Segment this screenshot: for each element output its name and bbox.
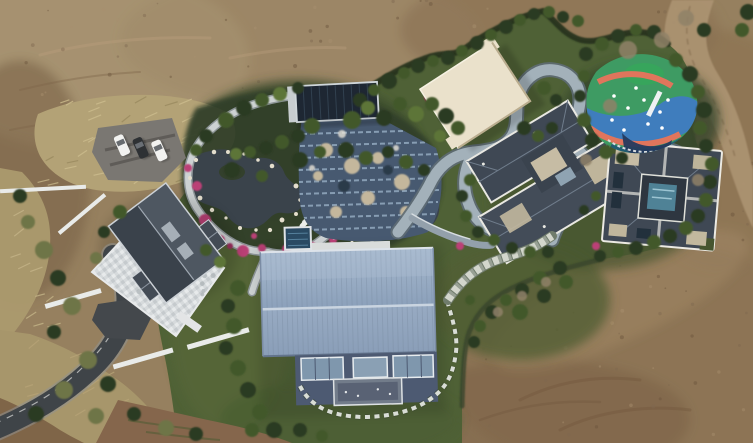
- tree: [472, 226, 484, 238]
- tree: [226, 318, 242, 334]
- tree: [230, 148, 242, 160]
- tree: [616, 152, 628, 164]
- tree: [585, 133, 599, 147]
- dirt-speckle: [125, 44, 128, 47]
- dirt-speckle: [742, 239, 745, 242]
- dirt-speckle: [486, 8, 488, 10]
- tree: [230, 280, 246, 296]
- tree: [244, 146, 256, 158]
- tree: [629, 241, 643, 255]
- tree: [113, 205, 127, 219]
- dirt-speckle: [429, 2, 433, 6]
- tree: [158, 420, 174, 436]
- dirt-speckle: [257, 80, 260, 83]
- dirt-speckle: [618, 333, 620, 335]
- tree: [559, 275, 573, 289]
- dirt-speckle: [325, 25, 328, 28]
- flowering-shrub: [592, 242, 600, 250]
- tree: [528, 8, 540, 20]
- dirt-speckle: [658, 312, 661, 315]
- tree: [663, 229, 677, 243]
- plunge-pool: [285, 227, 312, 250]
- tree: [190, 144, 202, 156]
- tree: [697, 23, 711, 37]
- dirt-speckle: [31, 43, 35, 47]
- bare-tree: [493, 307, 503, 317]
- dirt-speckle: [293, 64, 297, 68]
- dirt-speckle: [169, 76, 171, 78]
- tree: [441, 51, 455, 65]
- tree: [691, 85, 705, 99]
- dirt-speckle: [309, 29, 313, 33]
- tree: [359, 151, 373, 165]
- dirt-speckle: [657, 275, 660, 278]
- tree: [595, 37, 609, 51]
- bare-tree: [654, 32, 670, 48]
- tree: [314, 146, 326, 158]
- edge-rock: [294, 212, 298, 216]
- dirt-speckle: [102, 8, 105, 11]
- tree: [512, 304, 528, 320]
- dirt-speckle: [712, 433, 715, 436]
- dirt-speckle: [731, 212, 735, 216]
- dirt-speckle: [61, 48, 65, 52]
- tree: [214, 256, 226, 268]
- tree: [275, 135, 289, 149]
- tree: [537, 81, 551, 95]
- tree: [434, 130, 446, 142]
- tree: [577, 113, 591, 127]
- tree: [224, 162, 240, 178]
- tree: [594, 250, 606, 262]
- dirt-speckle: [657, 10, 660, 13]
- tree: [55, 381, 73, 399]
- dirt-speckle: [47, 10, 49, 12]
- dirt-speckle: [396, 17, 399, 20]
- tree: [470, 36, 484, 50]
- edge-rock: [238, 226, 242, 230]
- tree: [572, 15, 584, 27]
- tree: [343, 111, 361, 129]
- bare-tree: [603, 99, 617, 113]
- dirt-speckle: [485, 358, 487, 360]
- tile-dot: [200, 281, 205, 286]
- dirt-speckle: [116, 18, 119, 21]
- dirt-speckle: [313, 6, 316, 9]
- dirt-speckle: [225, 19, 227, 21]
- tree: [557, 11, 569, 23]
- bare-tree: [580, 154, 592, 166]
- dirt-speckle: [567, 433, 570, 436]
- tree: [485, 29, 497, 41]
- dirt-speckle: [562, 421, 564, 423]
- tree: [90, 252, 102, 264]
- dirt-speckle: [599, 365, 601, 367]
- tree: [599, 145, 613, 159]
- dirt-speckle: [319, 40, 322, 43]
- edge-rock: [194, 158, 198, 162]
- aerial-scene: [0, 0, 753, 443]
- tree: [514, 14, 526, 26]
- dirt-speckle: [488, 424, 491, 427]
- dirt-speckle: [108, 73, 112, 77]
- edge-rock: [198, 196, 203, 201]
- tree: [245, 423, 259, 437]
- tree: [506, 242, 518, 254]
- tree: [230, 360, 246, 376]
- dirt-speckle: [310, 40, 313, 43]
- dirt-speckle: [595, 425, 598, 428]
- tree: [456, 45, 468, 57]
- tree: [451, 121, 465, 135]
- tree: [500, 294, 512, 306]
- tree: [292, 82, 304, 94]
- tree: [682, 66, 698, 82]
- tree: [647, 235, 661, 249]
- edge-rock: [280, 218, 285, 223]
- tree: [578, 70, 590, 82]
- tree: [408, 106, 424, 122]
- tree: [252, 404, 268, 420]
- tree: [28, 406, 44, 422]
- tree: [100, 376, 116, 392]
- tile-dot: [211, 273, 216, 278]
- tree: [418, 164, 430, 176]
- tree: [50, 270, 66, 286]
- tree: [256, 170, 268, 182]
- tree: [221, 299, 235, 313]
- tree: [376, 110, 392, 126]
- tree: [240, 382, 256, 398]
- tree: [127, 407, 141, 421]
- tree: [468, 336, 480, 348]
- tree: [542, 246, 554, 258]
- dirt-speckle: [717, 370, 720, 373]
- courtyard-pool: [647, 183, 677, 211]
- edge-rock: [294, 184, 299, 189]
- tree: [259, 141, 273, 155]
- tree: [189, 427, 203, 441]
- tree: [591, 191, 601, 201]
- dirt-speckle: [745, 312, 748, 315]
- tree: [304, 118, 320, 134]
- tree: [488, 234, 500, 246]
- tree: [679, 221, 693, 235]
- tree: [524, 246, 536, 258]
- tree: [553, 261, 567, 275]
- dirt-speckle: [629, 403, 633, 407]
- tree: [696, 102, 712, 118]
- dirt-speckle: [610, 321, 614, 325]
- tree: [88, 408, 104, 424]
- bare-tree: [517, 291, 527, 301]
- tree: [219, 341, 233, 355]
- bare-tree: [692, 174, 704, 186]
- tree: [546, 122, 558, 134]
- dirt-speckle: [694, 381, 698, 385]
- dirt-speckle: [690, 334, 693, 337]
- tree: [574, 90, 586, 102]
- dirt-speckle: [254, 27, 257, 30]
- dirt-speckle: [70, 26, 72, 28]
- dirt-speckle: [664, 287, 666, 289]
- bare-tree: [541, 277, 551, 287]
- tree: [411, 59, 425, 73]
- tree: [612, 246, 624, 258]
- tree: [200, 244, 212, 256]
- tree: [735, 23, 749, 37]
- tree: [399, 155, 413, 169]
- tree: [699, 139, 713, 153]
- tree: [438, 108, 454, 124]
- tree: [517, 121, 531, 135]
- tree: [47, 325, 61, 339]
- dirt-speckle: [691, 303, 694, 306]
- tree: [474, 320, 486, 332]
- tree: [98, 226, 110, 238]
- dirt-speckle: [544, 379, 547, 382]
- tree: [464, 174, 476, 186]
- aerial-photo: [0, 0, 753, 443]
- dirt-speckle: [738, 344, 741, 347]
- tree: [273, 87, 287, 101]
- dirt-speckle: [24, 61, 27, 64]
- dirt-speckle: [615, 368, 618, 371]
- tree: [550, 94, 562, 106]
- tree: [579, 205, 589, 215]
- tree: [691, 209, 705, 223]
- edge-rock: [188, 176, 192, 180]
- tree: [543, 6, 555, 18]
- tree: [630, 24, 642, 36]
- tree: [611, 29, 625, 43]
- tree: [381, 73, 397, 89]
- tree: [63, 297, 81, 315]
- tree: [427, 55, 439, 67]
- dirt-speckle: [620, 309, 624, 313]
- tree: [699, 193, 713, 207]
- tree: [13, 189, 27, 203]
- dirt-speckle: [659, 397, 662, 400]
- tree: [693, 121, 707, 135]
- tree: [199, 129, 213, 143]
- tree: [218, 112, 234, 128]
- tile-dot: [201, 292, 205, 296]
- tree: [532, 130, 544, 142]
- edge-rock: [226, 150, 230, 154]
- bare-tree: [678, 10, 694, 26]
- tree: [236, 100, 252, 116]
- tree: [669, 53, 683, 67]
- dirt-speckle: [742, 210, 744, 212]
- tree: [338, 142, 354, 158]
- tree: [316, 430, 328, 442]
- dirt-speckle: [157, 3, 159, 5]
- tree: [398, 67, 410, 79]
- tree: [255, 93, 269, 107]
- dirt-speckle: [620, 335, 624, 339]
- edge-rock: [268, 228, 272, 232]
- tree: [703, 175, 717, 189]
- tree: [499, 20, 513, 34]
- tree: [292, 152, 308, 168]
- dirt-speckle: [117, 55, 119, 57]
- dirt-speckle: [44, 91, 46, 93]
- tree: [537, 289, 551, 303]
- tree: [705, 157, 719, 171]
- dirt-speckle: [742, 408, 745, 411]
- dirt-speckle: [143, 14, 146, 17]
- dirt-speckle: [685, 290, 687, 292]
- tree: [456, 190, 468, 202]
- dirt-speckle: [649, 285, 652, 288]
- tree: [21, 215, 35, 229]
- tree: [460, 210, 472, 222]
- dirt-speckle: [652, 367, 654, 369]
- dirt-speckle: [328, 39, 332, 43]
- tree: [291, 129, 305, 143]
- tree: [293, 423, 307, 437]
- edge-rock: [256, 158, 260, 162]
- dirt-speckle: [194, 56, 196, 58]
- tree: [79, 351, 97, 369]
- tree: [382, 146, 394, 158]
- edge-rock: [270, 164, 275, 169]
- window-bays: [301, 355, 434, 380]
- edge-rock: [212, 150, 216, 154]
- edge-rock: [254, 228, 257, 231]
- dirt-speckle: [247, 65, 249, 67]
- dirt-speckle: [746, 223, 749, 226]
- dirt-speckle: [472, 24, 476, 28]
- tree: [425, 97, 439, 111]
- dirt-speckle: [651, 405, 655, 409]
- dirt-speckle: [41, 93, 44, 96]
- tree: [579, 47, 593, 61]
- tree: [35, 241, 53, 259]
- dirt-speckle: [668, 384, 670, 386]
- tile-dot: [201, 289, 205, 293]
- tree: [465, 295, 475, 305]
- tree: [393, 97, 407, 111]
- blue-barn-building: [256, 224, 447, 419]
- bare-tree: [619, 41, 637, 59]
- dirt-speckle: [663, 10, 666, 13]
- tree: [361, 101, 375, 115]
- tree: [266, 422, 282, 438]
- flowering-shrub: [456, 242, 464, 250]
- tree: [368, 84, 380, 96]
